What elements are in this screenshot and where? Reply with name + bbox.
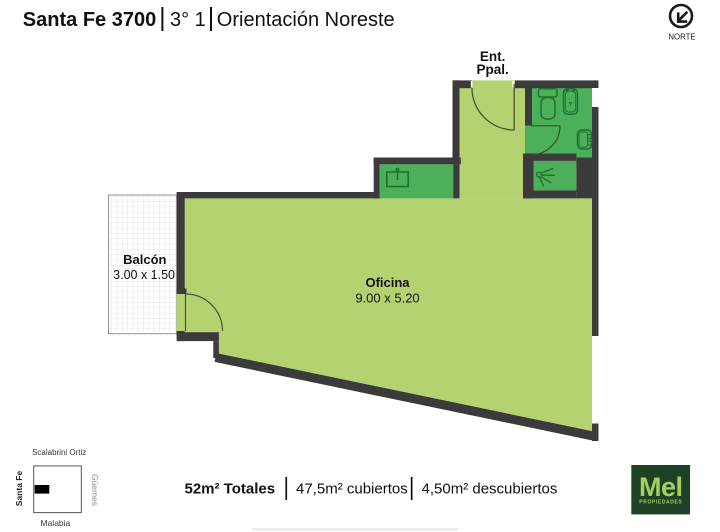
svg-text:Balcón: Balcón — [123, 252, 166, 267]
svg-text:Mel: Mel — [639, 472, 683, 502]
svg-text:9.00 x 5.20: 9.00 x 5.20 — [355, 291, 419, 306]
svg-text:Oficina: Oficina — [365, 275, 410, 290]
svg-text:Güemes: Güemes — [90, 474, 100, 506]
svg-text:PROPIEDADES: PROPIEDADES — [639, 500, 682, 506]
svg-text:Santa Fe: Santa Fe — [14, 471, 24, 507]
svg-text:Orientación Noreste: Orientación Noreste — [217, 9, 395, 31]
svg-text:3° 1: 3° 1 — [170, 9, 206, 31]
svg-text:Santa Fe 3700: Santa Fe 3700 — [23, 9, 156, 31]
svg-text:Scalabrini Ortiz: Scalabrini Ortiz — [32, 448, 86, 457]
svg-text:Malabia: Malabia — [41, 518, 71, 528]
svg-text:Ppal.: Ppal. — [476, 62, 508, 77]
svg-text:52m² Totales: 52m² Totales — [185, 481, 276, 498]
svg-text:47,5m² cubiertos: 47,5m² cubiertos — [296, 481, 408, 498]
svg-text:4,50m² descubiertos: 4,50m² descubiertos — [422, 481, 558, 498]
svg-text:3.00 x 1.50: 3.00 x 1.50 — [113, 268, 175, 282]
svg-text:NORTE: NORTE — [668, 32, 695, 41]
